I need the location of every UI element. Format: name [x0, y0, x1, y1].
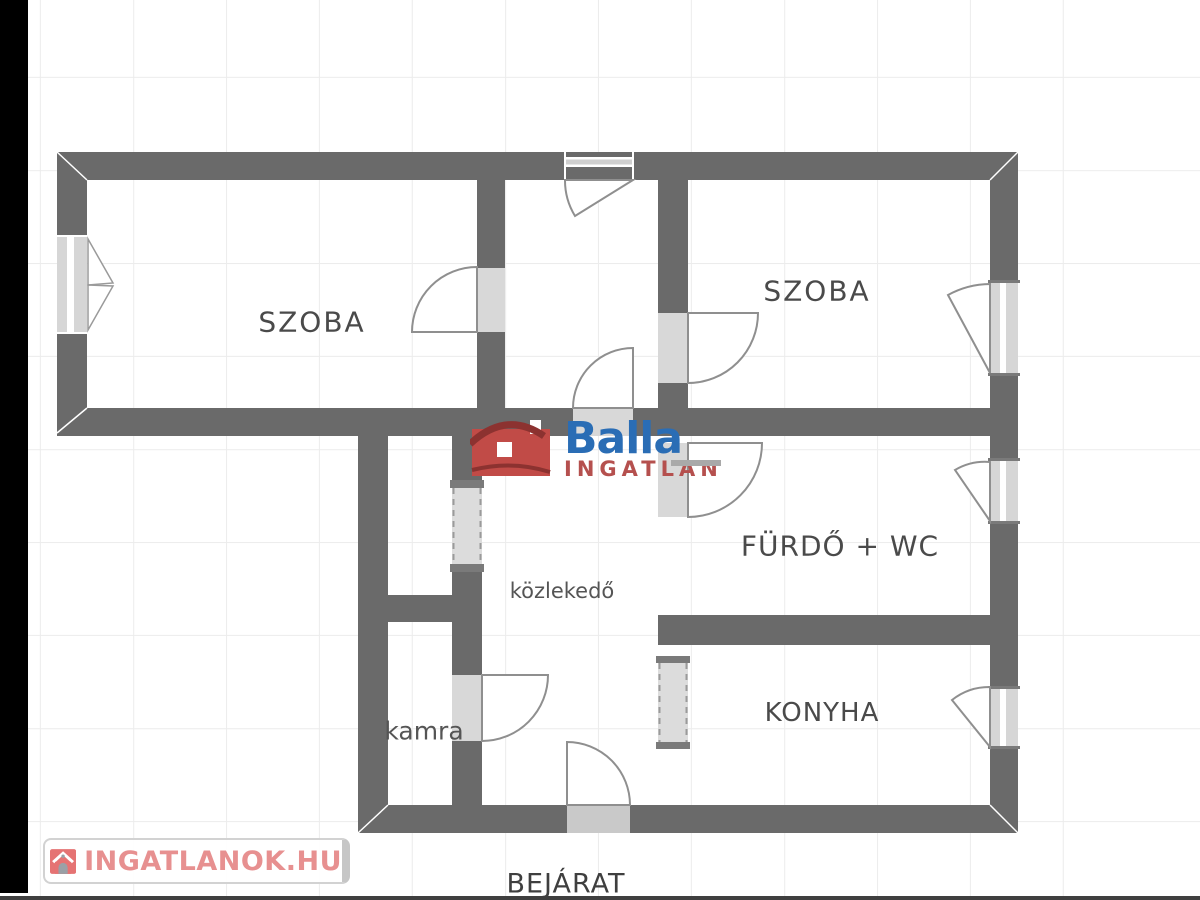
balla-house-icon [470, 420, 554, 478]
wall-wing-left [358, 436, 388, 833]
door-swing-entrance [567, 742, 630, 805]
wall-corner-miters [57, 152, 1018, 833]
window-bathroom [955, 458, 1020, 524]
window-szoba-left [57, 235, 113, 334]
window-kitchen-hallway [656, 656, 690, 749]
room-label-kitchen: KONYHA [765, 698, 880, 728]
door-swing-szoba-right [688, 313, 758, 383]
door-opening-entrance [567, 805, 630, 833]
floor-plan-image: SZOBA SZOBA FÜRDŐ + WC KONYHA közlekedő … [0, 0, 1200, 900]
balla-logo-name: Balla [564, 420, 723, 458]
ingatlanok-watermark: INGATLANOK.HU [43, 838, 350, 884]
room-label-szoba-right: SZOBA [763, 275, 870, 308]
balla-ingatlan-logo: Balla INGATLAN [470, 420, 723, 479]
wall-bottom-outer [358, 805, 1018, 833]
window-pantry-wall [450, 480, 484, 572]
door-opening-szoba-right [658, 313, 688, 383]
entrance-label: BEJÁRAT [506, 869, 625, 900]
room-label-bathroom: FÜRDŐ + WC [741, 530, 939, 563]
door-swing-center-room [573, 348, 633, 408]
letterbox-bar [0, 0, 28, 893]
wall-bath-kitchen-divider [658, 615, 990, 645]
room-label-hallway: közlekedő [510, 579, 615, 603]
door-opening-szoba-left [477, 268, 505, 332]
door-swing-szoba-left [412, 267, 477, 332]
door-top-exterior [564, 152, 634, 216]
wall-center-right [658, 180, 688, 436]
door-swing-pantry [482, 675, 548, 741]
watermark-text: INGATLANOK.HU [84, 846, 342, 877]
window-szoba-right [948, 280, 1020, 376]
window-kitchen-right [952, 686, 1020, 749]
image-bottom-edge [0, 896, 1200, 900]
room-label-szoba-left: SZOBA [258, 306, 365, 339]
ingatlanok-house-icon [50, 844, 76, 879]
balla-logo-underline [671, 460, 721, 466]
room-label-pantry: kamra [384, 717, 463, 746]
wall-top-outer [57, 152, 1018, 180]
